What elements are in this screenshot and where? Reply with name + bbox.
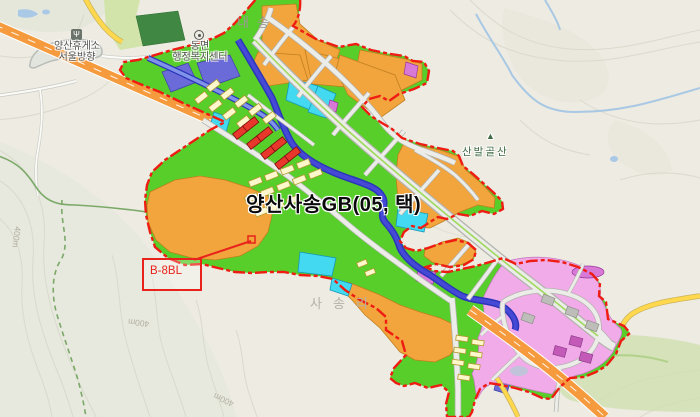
label-sanbalgolsan: 산발골산 bbox=[462, 144, 509, 159]
label-admin-center: 동면 행정복지센터 bbox=[150, 41, 250, 63]
parcel-callout[interactable]: B-8BL bbox=[142, 258, 202, 291]
label-rest-area-line1: 양산휴게소 bbox=[30, 41, 124, 52]
mountain-peak-icon: ▲ bbox=[486, 131, 495, 141]
rest-area-icon: Ψ bbox=[71, 29, 82, 40]
parcel-callout-label: B-8BL bbox=[150, 265, 182, 277]
map-viewport[interactable]: 양산사송GB(05, 택) 내송 사송리 ▲ 산발골산 동면 행정복지센터 Ψ … bbox=[0, 0, 700, 417]
label-naesong: 내송 bbox=[237, 12, 277, 31]
label-admin-center-line1: 동면 bbox=[150, 41, 250, 52]
label-rest-area: 양산휴게소 서울방향 bbox=[30, 41, 124, 63]
pond bbox=[510, 366, 528, 376]
district-title: 양산사송GB(05, 택) bbox=[246, 188, 421, 217]
label-admin-center-line2: 행정복지센터 bbox=[150, 52, 250, 63]
label-sasongri: 사송리 bbox=[310, 293, 379, 312]
label-rest-area-line2: 서울방향 bbox=[30, 52, 124, 63]
government-office-icon bbox=[194, 30, 204, 40]
